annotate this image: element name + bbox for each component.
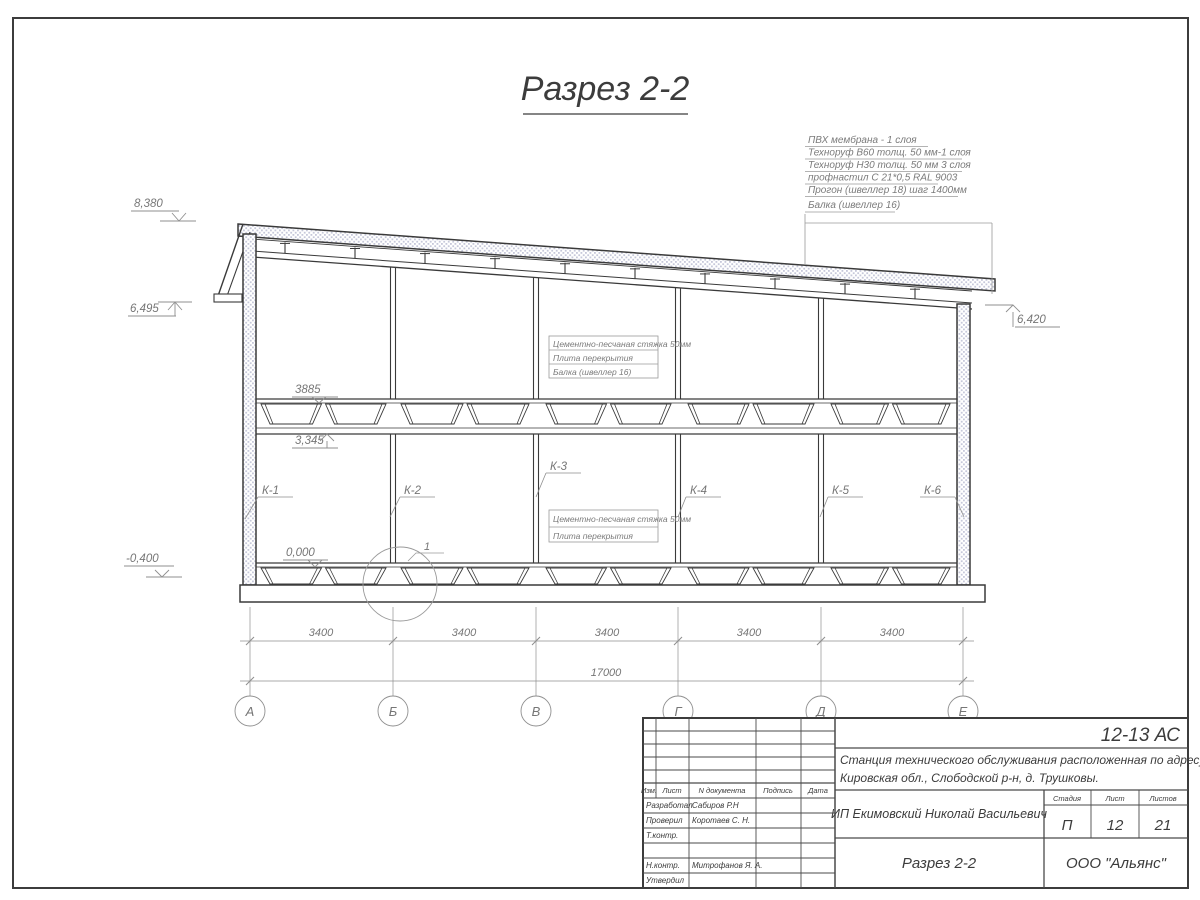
column-label-k3: К-3 [536, 461, 581, 497]
detail-number: 1 [424, 541, 430, 553]
client-name: ИП Екимовский Николай Васильевич [831, 807, 1047, 821]
name-checked: Коротаев С. Н. [692, 816, 750, 825]
svg-text:3,345: 3,345 [295, 435, 324, 447]
elevation-arrow-icon [172, 213, 186, 221]
svg-text:3885: 3885 [295, 384, 321, 396]
section-drawing: Разрез 2-2 [0, 0, 1200, 900]
axis-letter: В [532, 704, 541, 719]
role-tcontrol: Т.контр. [646, 831, 678, 840]
foundation-strip [240, 585, 985, 602]
column-label-k2: К-2 [390, 485, 435, 517]
column-label-k4: К-4 [678, 485, 721, 517]
svg-text:К-2: К-2 [404, 485, 422, 497]
dimension-block: 3400 3400 3400 3400 3400 17000 [240, 607, 974, 696]
company-name: ООО "Альянс" [1066, 855, 1167, 872]
elevation-arrow-icon [1006, 305, 1020, 312]
sheet-label: Лист [1104, 794, 1124, 803]
role-ncontrol: Н.контр. [646, 861, 680, 870]
svg-text:8,380: 8,380 [134, 198, 163, 210]
project-name-line2: Кировская обл., Слободской р-н, д. Трушк… [840, 771, 1099, 785]
note-line: Цементно-песчаная стяжка 50мм [553, 514, 691, 524]
page-title: Разрез 2-2 [521, 70, 690, 114]
drawing-sheet: Разрез 2-2 [0, 0, 1200, 900]
structure [214, 224, 995, 602]
axis-letter: Д [814, 704, 825, 719]
svg-text:К-1: К-1 [262, 485, 279, 497]
axis-letter: Г [674, 704, 682, 719]
left-wall [243, 234, 256, 585]
axis-letter: Б [389, 704, 398, 719]
sheet-title: Разрез 2-2 [902, 855, 977, 872]
name-ncontrol: Митрофанов Я. А. [692, 861, 762, 870]
elevation-ceiling: 3,345 [292, 434, 338, 448]
stage-label: Стадия [1053, 794, 1081, 803]
col-sign: Подпись [763, 786, 793, 795]
project-name-line1: Станция технического обслуживания распол… [840, 753, 1200, 767]
elevation-ridge: 8,380 [131, 198, 196, 221]
svg-text:К-3: К-3 [550, 461, 568, 473]
dim-bay: 3400 [737, 627, 762, 639]
section-title: Разрез 2-2 [521, 70, 690, 108]
callout-line: Балка (швеллер 16) [808, 200, 900, 211]
sheet-value: 12 [1107, 817, 1124, 834]
elevation-slab-top: 3885 [292, 384, 338, 403]
elevation-arrow-icon [312, 397, 326, 403]
svg-text:-0,400: -0,400 [126, 553, 159, 565]
dim-bay: 3400 [595, 627, 620, 639]
note-line: Цементно-песчаная стяжка 50мм [553, 339, 691, 349]
elevation-arrow-icon [155, 570, 169, 577]
titleblock: 12-13 АС Станция технического обслуживан… [641, 718, 1200, 888]
callout-line: ПВХ мембрана - 1 слоя [808, 134, 917, 146]
svg-text:6,420: 6,420 [1017, 314, 1046, 326]
elevation-eave-right: 6,420 [985, 305, 1060, 327]
dim-bay: 3400 [880, 627, 905, 639]
stage-value: П [1062, 817, 1073, 834]
svg-text:К-5: К-5 [832, 485, 850, 497]
svg-text:0,000: 0,000 [286, 547, 315, 559]
role-checked: Проверил [646, 816, 683, 825]
col-ndoc: N документа [699, 786, 746, 795]
svg-text:К-6: К-6 [924, 485, 942, 497]
elevation-floor: 0,000 [283, 547, 328, 567]
svg-text:6,495: 6,495 [130, 303, 159, 315]
dim-total: 17000 [591, 667, 622, 679]
note-ground-floor: Цементно-песчаная стяжка 50мм Плита пере… [549, 510, 691, 542]
dimension-ticks [246, 607, 967, 696]
column-label-k5: К-5 [820, 485, 863, 517]
dim-bay: 3400 [309, 627, 334, 639]
sheets-value: 21 [1154, 817, 1172, 834]
right-wall [957, 304, 970, 585]
role-developed: Разработал [646, 801, 693, 810]
name-developed: Сабиров Р.Н [692, 801, 739, 810]
sheets-label: Листов [1148, 794, 1176, 803]
col-izm: Изм. [641, 786, 657, 795]
callout-line: Техноруф Н30 толщ. 50 мм 3 слоя [808, 159, 971, 171]
roof-band [238, 224, 995, 291]
elevation-ground: -0,400 [124, 553, 182, 577]
note-line: Плита перекрытия [553, 531, 633, 541]
eave-foot [214, 294, 242, 302]
role-approved: Утвердил [645, 876, 685, 885]
callout-line: Техноруф В60 толщ. 50 мм-1 слоя [808, 147, 971, 159]
dim-bay: 3400 [452, 627, 477, 639]
svg-text:К-4: К-4 [690, 485, 707, 497]
col-list: Лист [661, 786, 681, 795]
note-mid-floor: Цементно-песчаная стяжка 50мм Плита пере… [549, 336, 691, 378]
axis-letter: А [245, 704, 255, 719]
axis-letter: Е [959, 704, 968, 719]
callout-line: Прогон (швеллер 18) шаг 1400мм [808, 185, 967, 196]
elevation-eave-left: 6,495 [128, 302, 192, 316]
col-date: Дата [807, 786, 828, 795]
document-code: 12-13 АС [1101, 725, 1180, 746]
note-line: Балка (швеллер 16) [553, 367, 631, 377]
callout-line: профнастил С 21*0,5 RAL 9003 [808, 172, 958, 184]
note-line: Плита перекрытия [553, 353, 633, 363]
